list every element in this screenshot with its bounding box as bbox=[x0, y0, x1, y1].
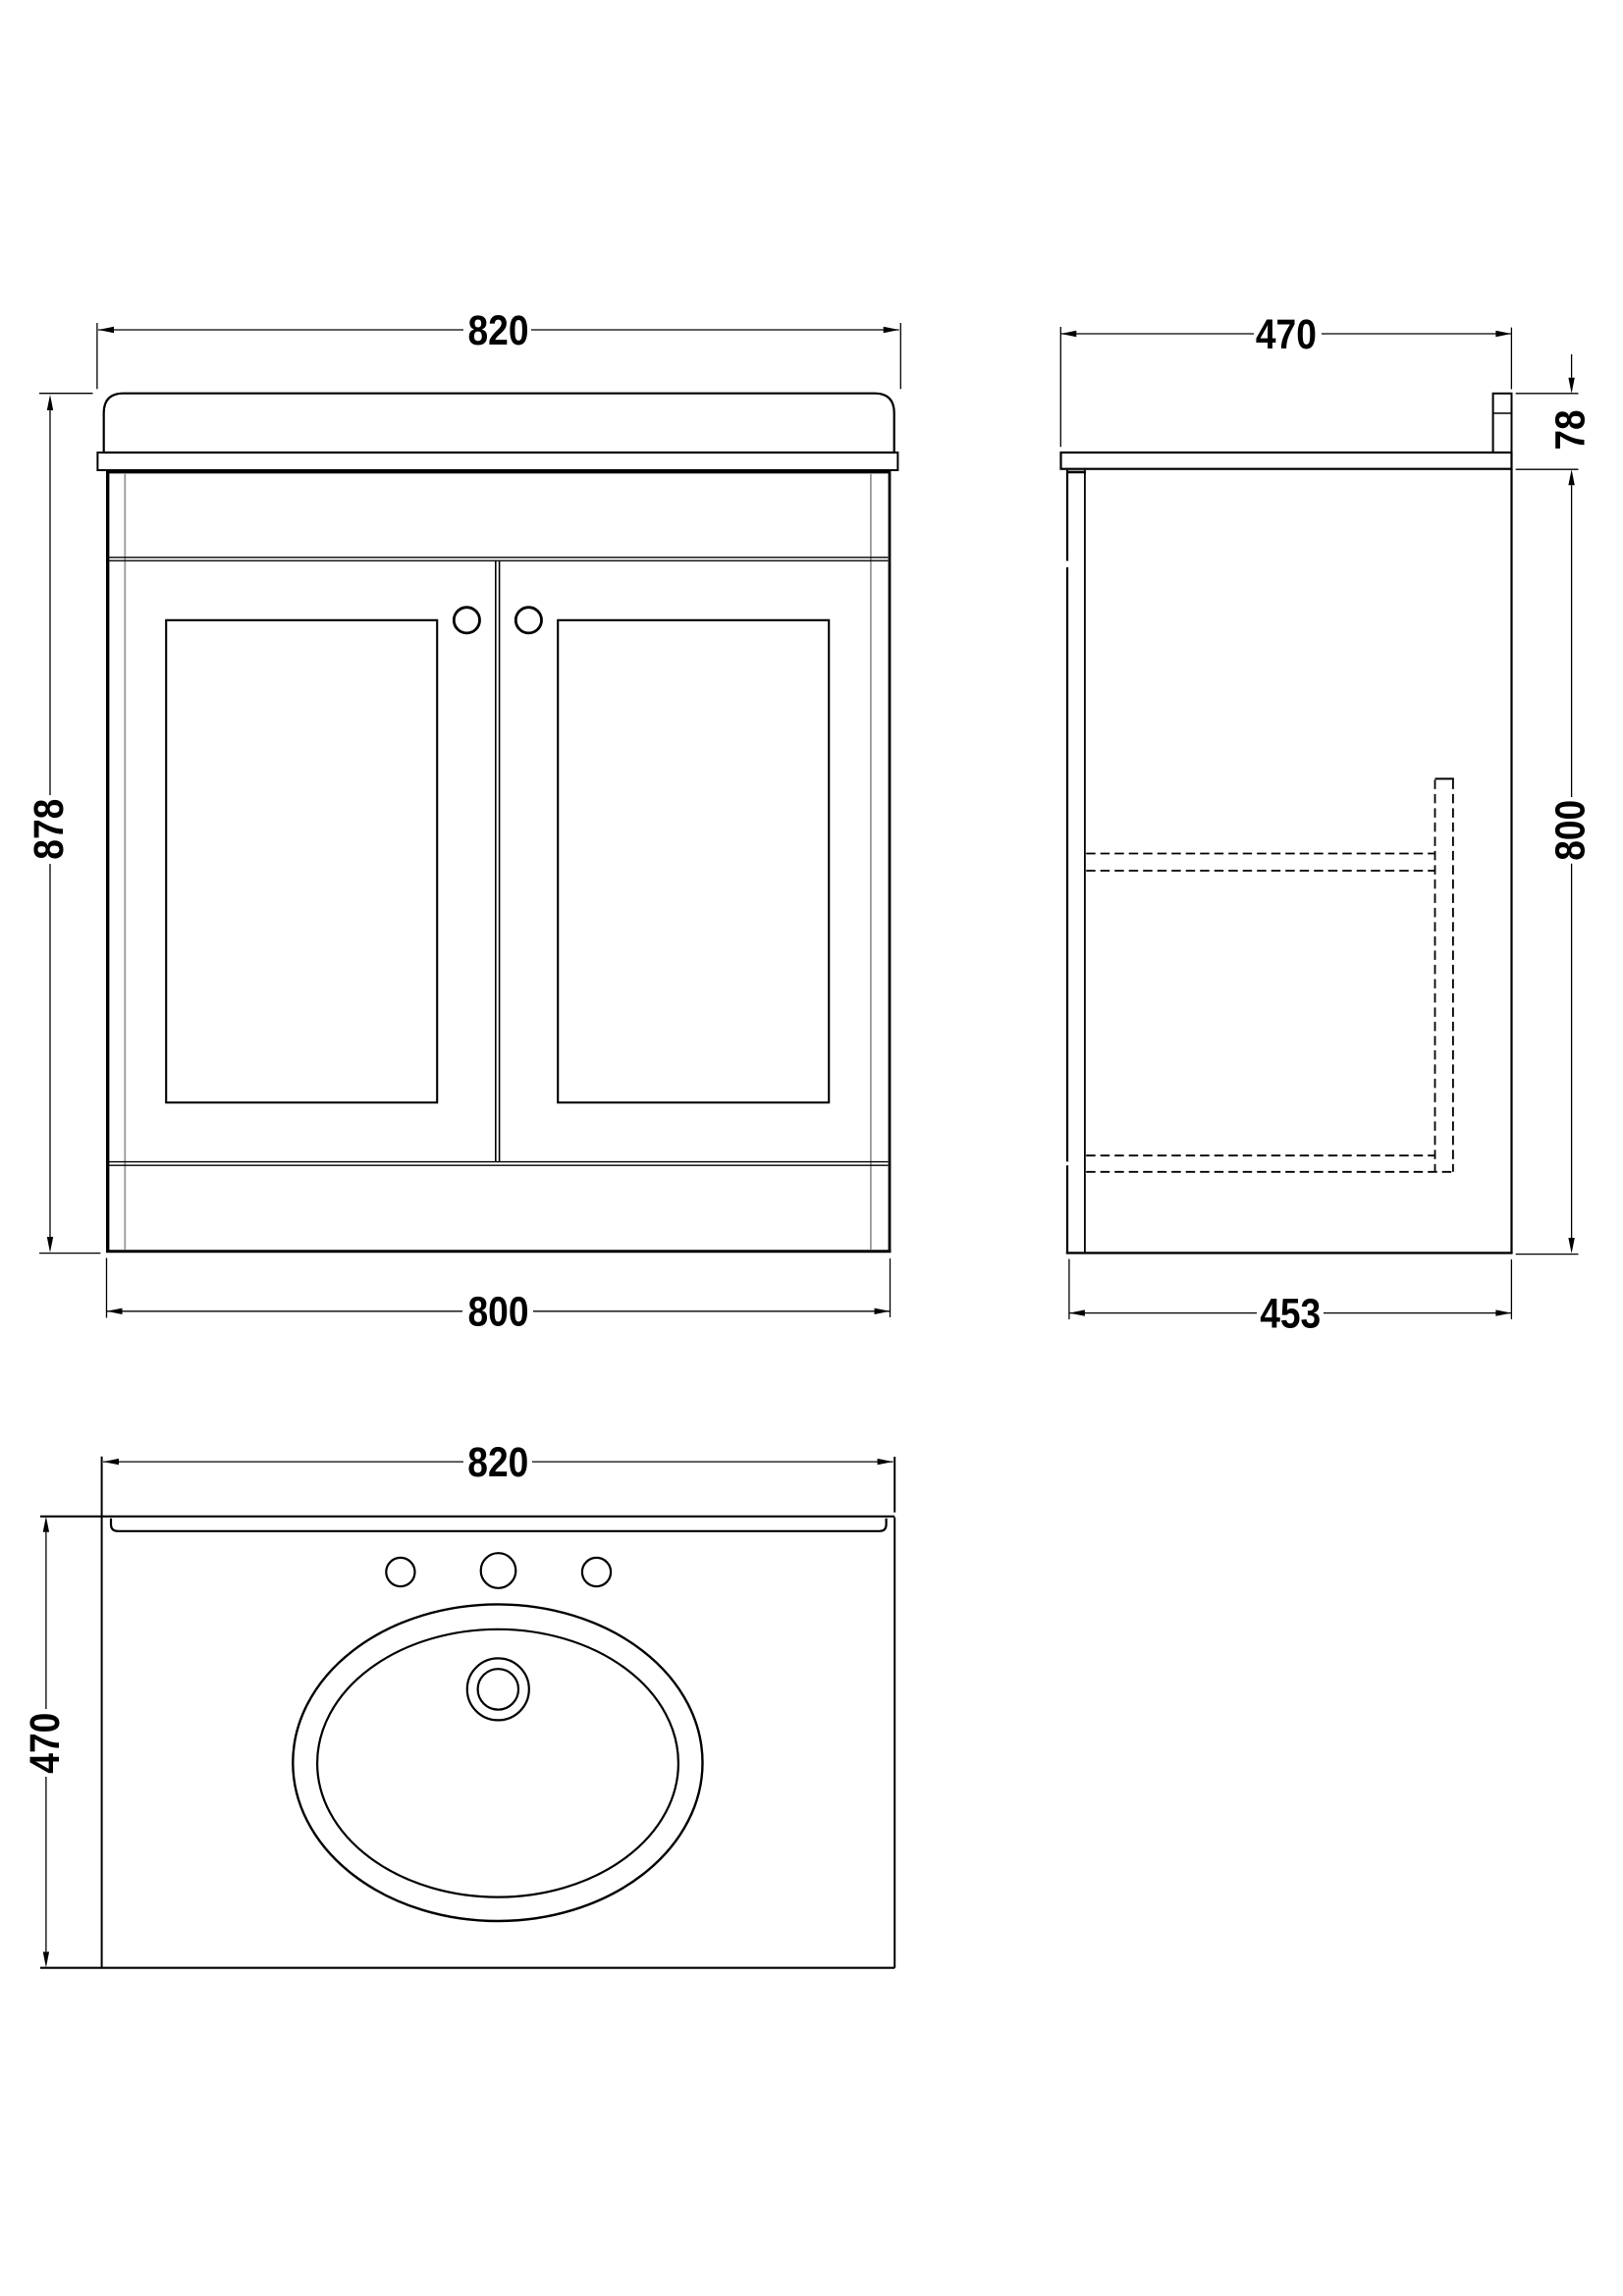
svg-text:878: 878 bbox=[26, 799, 73, 860]
svg-text:820: 820 bbox=[468, 307, 529, 354]
svg-text:800: 800 bbox=[468, 1289, 529, 1336]
svg-text:470: 470 bbox=[22, 1713, 69, 1774]
svg-text:800: 800 bbox=[1547, 800, 1595, 861]
svg-text:453: 453 bbox=[1260, 1290, 1321, 1337]
svg-text:78: 78 bbox=[1547, 410, 1595, 451]
svg-text:820: 820 bbox=[467, 1439, 528, 1486]
svg-text:470: 470 bbox=[1256, 311, 1317, 358]
